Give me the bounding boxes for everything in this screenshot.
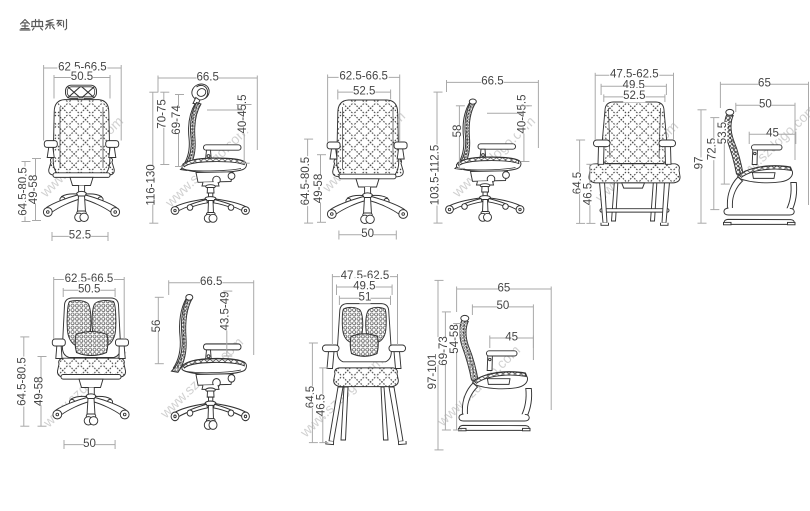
svg-text:49-58: 49-58 bbox=[313, 174, 325, 203]
svg-text:116-130: 116-130 bbox=[145, 164, 157, 205]
svg-text:52.5: 52.5 bbox=[353, 85, 375, 97]
svg-text:45: 45 bbox=[766, 128, 779, 140]
svg-text:66.5: 66.5 bbox=[196, 71, 218, 83]
svg-text:97: 97 bbox=[694, 157, 706, 170]
svg-text:46.5: 46.5 bbox=[315, 394, 327, 416]
svg-text:46.5: 46.5 bbox=[583, 183, 595, 205]
svg-text:43.5-49: 43.5-49 bbox=[219, 291, 231, 330]
svg-text:65: 65 bbox=[758, 78, 771, 90]
svg-text:49-58: 49-58 bbox=[28, 175, 40, 204]
svg-text:69-74: 69-74 bbox=[171, 105, 183, 135]
svg-text:70-75: 70-75 bbox=[156, 99, 168, 128]
svg-text:64.5-80.5: 64.5-80.5 bbox=[16, 357, 28, 406]
svg-text:66.5: 66.5 bbox=[200, 276, 222, 288]
svg-text:53.5: 53.5 bbox=[717, 122, 729, 144]
svg-text:52.5: 52.5 bbox=[623, 90, 645, 102]
svg-text:103.5-112.5: 103.5-112.5 bbox=[430, 145, 442, 206]
svg-text:65: 65 bbox=[498, 282, 511, 294]
svg-text:58: 58 bbox=[452, 125, 464, 138]
svg-text:66.5: 66.5 bbox=[481, 76, 503, 88]
svg-text:40-45.5: 40-45.5 bbox=[517, 94, 529, 133]
svg-text:50: 50 bbox=[759, 99, 772, 111]
svg-text:50.5: 50.5 bbox=[78, 284, 100, 296]
svg-text:52.5: 52.5 bbox=[69, 230, 91, 242]
svg-text:45: 45 bbox=[505, 331, 518, 343]
svg-text:54-58: 54-58 bbox=[449, 324, 461, 353]
svg-text:40-45.5: 40-45.5 bbox=[237, 94, 249, 133]
svg-text:49-58: 49-58 bbox=[34, 377, 46, 406]
svg-text:50: 50 bbox=[497, 300, 510, 312]
svg-text:51: 51 bbox=[359, 292, 372, 304]
svg-text:50: 50 bbox=[361, 228, 374, 240]
svg-text:50.5: 50.5 bbox=[71, 71, 93, 83]
svg-text:50: 50 bbox=[83, 438, 96, 450]
svg-text:56: 56 bbox=[151, 320, 163, 333]
svg-text:62.5-66.5: 62.5-66.5 bbox=[339, 71, 388, 83]
svg-text:64.5-80.5: 64.5-80.5 bbox=[300, 157, 312, 206]
